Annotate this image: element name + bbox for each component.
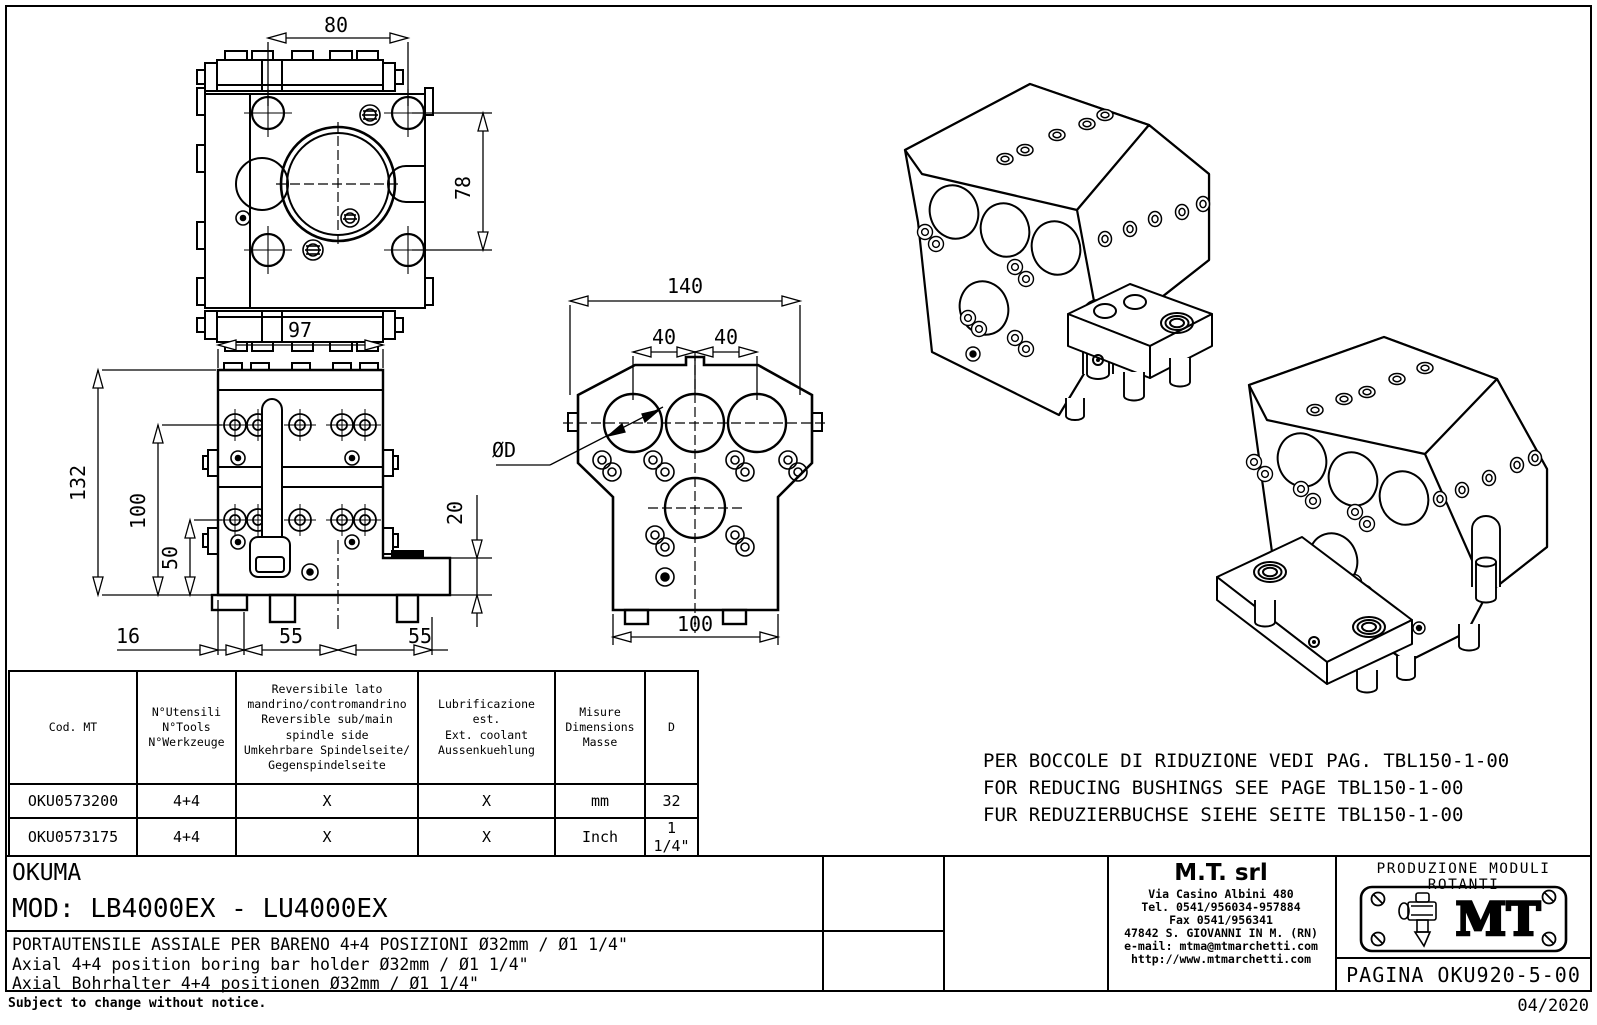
cell-tools: 4+4 xyxy=(137,818,236,856)
dim-top-width: 80 xyxy=(324,13,348,37)
note-line-de: FUR REDUZIERBUCHSE SIEHE SEITE TBL150-1-… xyxy=(983,802,1509,829)
top-view-drawing: 80 78 xyxy=(180,8,510,353)
cell-tools: 4+4 xyxy=(137,784,236,818)
dim-front-width: 97 xyxy=(288,318,312,342)
dim-front-step: 20 xyxy=(443,501,467,525)
title-block-vline-2 xyxy=(943,855,945,992)
back-view-drawing: 140 40 40 ØD 100 xyxy=(480,265,830,665)
dim-front-pitch-right: 55 xyxy=(408,624,432,648)
cell-cod: OKU0573200 xyxy=(9,784,137,818)
dim-front-low-height: 50 xyxy=(158,546,182,570)
col-header-reversible: Reversibile lato mandrino/contromandrino… xyxy=(236,671,418,784)
dim-back-bore-label: ØD xyxy=(492,438,516,462)
cell-cod: OKU0573175 xyxy=(9,818,137,856)
description-it: PORTAUTENSILE ASSIALE PER BARENO 4+4 POS… xyxy=(12,935,628,954)
note-line-it: PER BOCCOLE DI RIDUZIONE VEDI PAG. TBL15… xyxy=(983,748,1509,775)
description-en: Axial 4+4 position boring bar holder Ø32… xyxy=(12,955,529,974)
dim-front-mid-height: 100 xyxy=(126,493,150,529)
dim-back-pitch-right: 40 xyxy=(714,325,738,349)
rotary-module-icon xyxy=(1399,893,1436,946)
dim-front-total-height: 132 xyxy=(66,465,90,501)
dim-back-base-width: 100 xyxy=(677,612,713,636)
col-header-d: D xyxy=(645,671,698,784)
revision-date: 04/2020 xyxy=(1517,996,1589,1016)
dim-front-left: 16 xyxy=(116,624,140,648)
spec-table: Cod. MT N°Utensili N°Tools N°Werkzeuge R… xyxy=(8,670,699,857)
title-block-vline-1 xyxy=(822,855,824,992)
dim-back-pitch-left: 40 xyxy=(652,325,676,349)
cell-measure: Inch xyxy=(555,818,645,856)
cell-d: 32 xyxy=(645,784,698,818)
front-view-drawing: 97 132 100 50 16 55 55 20 xyxy=(60,315,510,670)
drawing-sheet: 80 78 xyxy=(0,0,1597,1025)
change-notice: Subject to change without notice. xyxy=(8,996,266,1011)
isometric-view-1 xyxy=(872,62,1217,424)
col-header-cod-mt: Cod. MT xyxy=(9,671,137,784)
cell-coolant: X xyxy=(418,784,555,818)
table-row: OKU0573175 4+4 X X Inch 1 1/4" xyxy=(9,818,698,856)
col-header-coolant: Lubrificazione est. Ext. coolant Aussenk… xyxy=(418,671,555,784)
reduction-bushing-notes: PER BOCCOLE DI RIDUZIONE VEDI PAG. TBL15… xyxy=(983,748,1509,829)
cell-measure: mm xyxy=(555,784,645,818)
pagina-divider xyxy=(1335,957,1592,959)
isometric-view-2 xyxy=(1197,332,1545,704)
table-row: OKU0573200 4+4 X X mm 32 xyxy=(9,784,698,818)
mt-logo: MT xyxy=(1358,884,1570,956)
company-info: M.T. srl Via Casino Albini 480 Tel. 0541… xyxy=(1109,858,1333,966)
title-block-top-line xyxy=(5,855,1592,857)
customer-name: OKUMA xyxy=(12,860,81,886)
cell-reversible: X xyxy=(236,818,418,856)
dim-front-pitch-left: 55 xyxy=(279,624,303,648)
dim-top-height: 78 xyxy=(451,176,475,200)
note-line-en: FOR REDUCING BUSHINGS SEE PAGE TBL150-1-… xyxy=(983,775,1509,802)
description-de: Axial Bohrhalter 4+4 positionen Ø32mm / … xyxy=(12,974,479,993)
model-designation: MOD: LB4000EX - LU4000EX xyxy=(12,894,388,924)
spec-table-header-row: Cod. MT N°Utensili N°Tools N°Werkzeuge R… xyxy=(9,671,698,784)
cell-reversible: X xyxy=(236,784,418,818)
company-web: http://www.mtmarchetti.com xyxy=(1109,953,1333,966)
page-number: PAGINA OKU920-5-00 xyxy=(1337,963,1590,987)
cell-coolant: X xyxy=(418,818,555,856)
col-header-tools: N°Utensili N°Tools N°Werkzeuge xyxy=(137,671,236,784)
title-block-divider xyxy=(5,930,943,932)
col-header-measure: Misure Dimensions Masse xyxy=(555,671,645,784)
company-name: M.T. srl xyxy=(1109,858,1333,888)
cell-d: 1 1/4" xyxy=(645,818,698,856)
dim-back-width: 140 xyxy=(667,274,703,298)
logo-letters: MT xyxy=(1455,892,1540,946)
